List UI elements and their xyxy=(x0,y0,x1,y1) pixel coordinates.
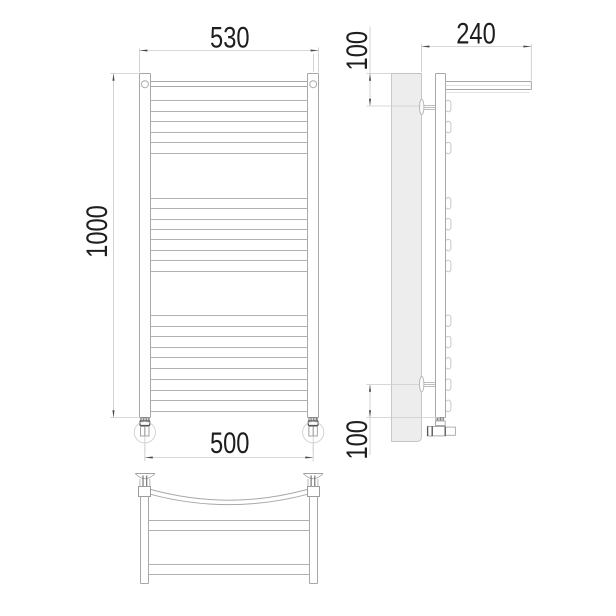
svg-text:100: 100 xyxy=(341,420,374,460)
svg-text:1000: 1000 xyxy=(80,205,113,258)
svg-text:100: 100 xyxy=(341,31,374,71)
svg-text:240: 240 xyxy=(456,17,496,50)
svg-text:500: 500 xyxy=(210,427,250,460)
svg-text:530: 530 xyxy=(210,21,250,54)
